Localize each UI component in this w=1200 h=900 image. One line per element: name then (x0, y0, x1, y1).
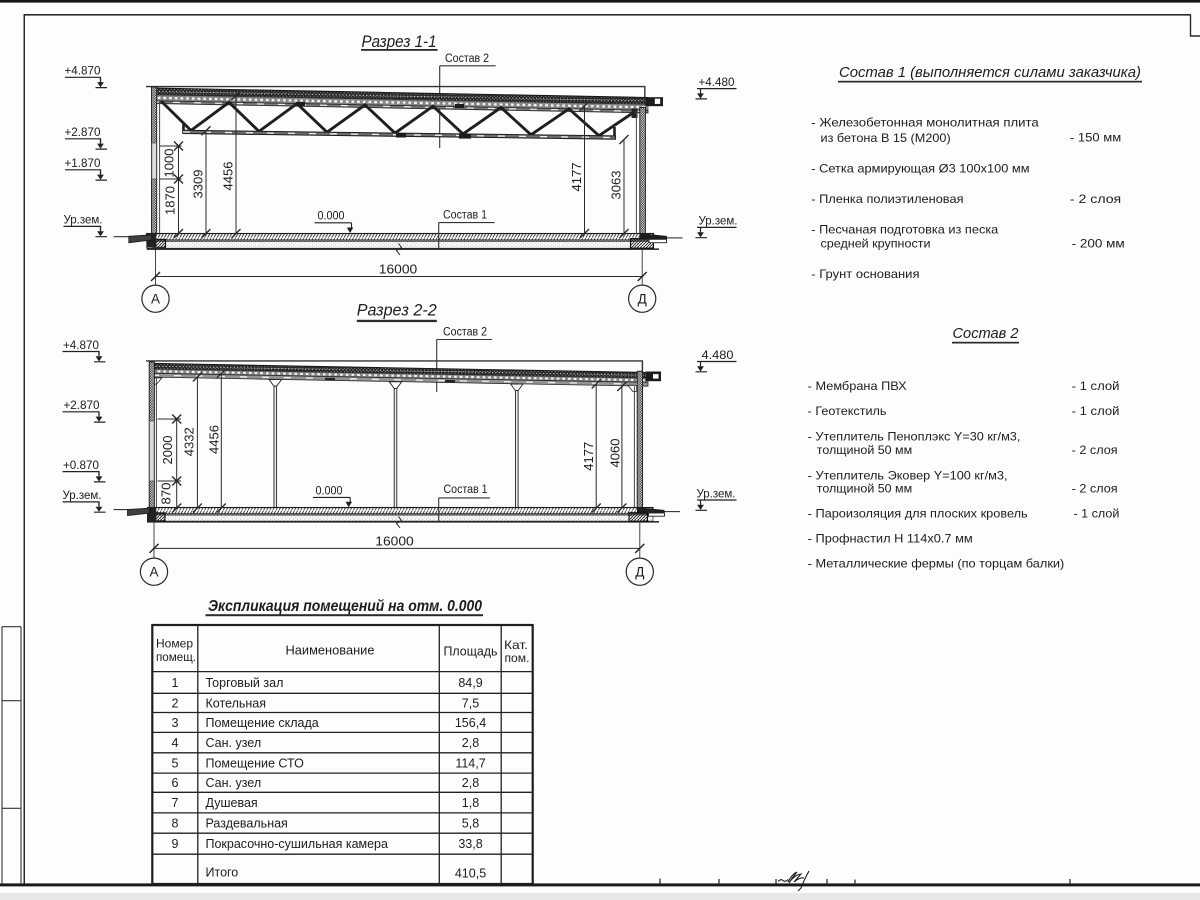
svg-text:- Пароизоляция для плоских кро: - Пароизоляция для плоских кровель (808, 507, 1028, 521)
svg-text:- Сетка армирующая Ø3 100х100: - Сетка армирующая Ø3 100х100 мм (811, 161, 1029, 175)
svg-text:- Утеплитель Эковер Y=100 кг/м: - Утеплитель Эковер Y=100 кг/м3, (808, 468, 1008, 482)
svg-text:1,8: 1,8 (462, 796, 479, 810)
svg-text:+4.870: +4.870 (63, 338, 99, 352)
svg-text:Разрез 2-2: Разрез 2-2 (357, 302, 437, 320)
svg-text:16000: 16000 (375, 534, 414, 548)
svg-text:+2.870: +2.870 (65, 125, 101, 139)
svg-text:+1.870: +1.870 (65, 156, 101, 170)
svg-text:Ур.зем.: Ур.зем. (63, 488, 102, 502)
svg-text:- 2 слоя: - 2 слоя (1072, 481, 1118, 495)
svg-text:9: 9 (172, 837, 179, 851)
svg-text:Д: Д (638, 292, 647, 307)
svg-text:870: 870 (160, 482, 174, 504)
svg-text:4177: 4177 (570, 162, 584, 191)
svg-text:Номер: Номер (156, 637, 193, 651)
svg-text:3063: 3063 (610, 170, 624, 199)
svg-text:- Металлические фермы (по торц: - Металлические фермы (по торцам балки) (808, 556, 1065, 570)
svg-text:Экспликация помещений на отм.: Экспликация помещений на отм. 0.000 (208, 598, 482, 615)
svg-text:- 1 слой: - 1 слой (1074, 507, 1120, 521)
svg-text:0.000: 0.000 (316, 485, 343, 497)
svg-text:- Пленка полиэтиленовая: - Пленка полиэтиленовая (811, 192, 963, 206)
svg-text:16000: 16000 (379, 263, 418, 277)
svg-text:Ур.зем.: Ур.зем. (64, 213, 103, 227)
svg-text:Помещение склада: Помещение склада (206, 716, 319, 730)
svg-text:2,8: 2,8 (462, 736, 479, 750)
svg-text:Котельная: Котельная (206, 696, 267, 710)
svg-text:5,8: 5,8 (462, 817, 479, 831)
svg-text:- 150 мм: - 150 мм (1070, 130, 1121, 144)
svg-text:- Песчаная подготовка из песка: - Песчаная подготовка из песка (811, 223, 998, 237)
svg-text:Разрез 1-1: Разрез 1-1 (362, 33, 437, 51)
svg-text:3309: 3309 (192, 169, 206, 198)
svg-text:33,8: 33,8 (458, 837, 482, 851)
svg-text:410,5: 410,5 (455, 867, 486, 881)
svg-text:1870: 1870 (164, 186, 178, 215)
svg-text:Покрасочно-сушильная камера: Покрасочно-сушильная камера (206, 837, 389, 851)
svg-text:- 1 слой: - 1 слой (1072, 404, 1120, 418)
svg-text:Д: Д (635, 565, 644, 580)
svg-text:2,8: 2,8 (462, 776, 479, 790)
svg-text:- 200 мм: - 200 мм (1072, 237, 1125, 251)
svg-text:- Утеплитель Пеноплэкс Y=30 кг: - Утеплитель Пеноплэкс Y=30 кг/м3, (808, 430, 1021, 444)
svg-text:Состав 2: Состав 2 (953, 326, 1019, 342)
svg-text:Раздевальная: Раздевальная (206, 817, 288, 831)
svg-text:- Грунт основания: - Грунт основания (811, 267, 919, 281)
svg-text:пом.: пом. (505, 651, 530, 665)
svg-text:А: А (151, 292, 160, 307)
svg-text:3: 3 (172, 716, 179, 730)
svg-text:А: А (149, 565, 158, 580)
svg-text:7: 7 (172, 796, 179, 810)
svg-text:4.480: 4.480 (702, 348, 734, 362)
svg-text:+2.870: +2.870 (64, 398, 100, 412)
svg-text:- 2 слоя: - 2 слоя (1072, 443, 1118, 457)
svg-text:2000: 2000 (161, 435, 175, 464)
svg-text:Наименование: Наименование (286, 644, 375, 658)
svg-text:Помещение СТО: Помещение СТО (206, 756, 305, 770)
svg-text:1: 1 (172, 676, 179, 690)
svg-text:4332: 4332 (183, 427, 197, 456)
svg-text:+4.870: +4.870 (65, 64, 101, 78)
svg-text:- 1 слой: - 1 слой (1072, 379, 1120, 393)
svg-text:Состав 2: Состав 2 (445, 53, 489, 65)
svg-text:7,5: 7,5 (462, 696, 479, 710)
svg-text:Площадь: Площадь (444, 645, 498, 659)
svg-text:84,9: 84,9 (458, 676, 482, 690)
svg-text:Итого: Итого (206, 866, 239, 880)
svg-text:толщиной 50 мм: толщиной 50 мм (817, 443, 912, 457)
svg-text:- Профнастил Н 114х0.7 мм: - Профнастил Н 114х0.7 мм (808, 532, 973, 546)
svg-text:Состав 1: Состав 1 (443, 210, 487, 222)
svg-text:+4.480: +4.480 (699, 75, 735, 89)
svg-text:Состав 1: Состав 1 (444, 484, 488, 496)
svg-text:6: 6 (172, 776, 179, 790)
svg-text:4456: 4456 (222, 161, 236, 190)
svg-text:8: 8 (172, 817, 179, 831)
svg-text:помещ.: помещ. (156, 650, 196, 664)
svg-text:5: 5 (172, 756, 179, 770)
svg-text:Сан. узел: Сан. узел (206, 736, 262, 750)
svg-text:средней крупности: средней крупности (821, 237, 931, 251)
svg-text:- Железобетонная монолитная п: - Железобетонная монолитная плита (811, 115, 1039, 129)
svg-text:Ур.зем.: Ур.зем. (697, 486, 736, 500)
svg-text:Состав 2: Состав 2 (443, 327, 487, 339)
svg-text:156,4: 156,4 (455, 716, 486, 730)
svg-text:- 2 слоя: - 2 слоя (1070, 192, 1121, 206)
svg-text:2: 2 (172, 696, 179, 710)
svg-text:из бетона В 15 (М200): из бетона В 15 (М200) (821, 131, 951, 145)
svg-text:114,7: 114,7 (455, 756, 485, 770)
svg-text:- Геотекстиль: - Геотекстиль (808, 404, 887, 418)
svg-text:Ур.зем.: Ур.зем. (699, 214, 738, 228)
svg-text:Душевая: Душевая (206, 796, 258, 810)
svg-text:Состав 1 (выполняется силами з: Состав 1 (выполняется силами заказчика) (839, 65, 1141, 81)
svg-text:1000: 1000 (163, 148, 177, 177)
svg-text:Торговый зал: Торговый зал (206, 676, 284, 690)
svg-text:4060: 4060 (608, 438, 622, 467)
svg-text:+0.870: +0.870 (63, 458, 99, 472)
svg-text:4: 4 (172, 736, 179, 750)
svg-text:0.000: 0.000 (318, 211, 345, 223)
svg-text:4177: 4177 (582, 442, 596, 471)
svg-text:- Мембрана ПВХ: - Мембрана ПВХ (808, 379, 907, 393)
svg-text:Сан. узел: Сан. узел (206, 776, 262, 790)
svg-text:толщиной 50 мм: толщиной 50 мм (817, 481, 912, 495)
svg-text:4456: 4456 (207, 425, 221, 454)
